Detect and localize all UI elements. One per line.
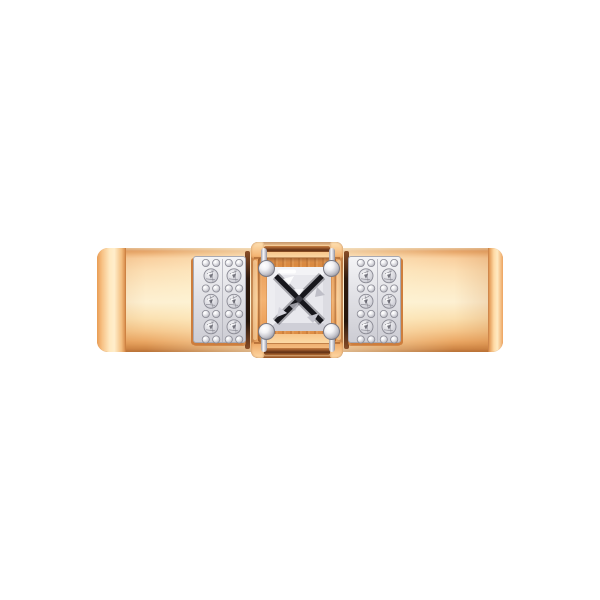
center-princess-diamond bbox=[267, 267, 331, 331]
prong-ball bbox=[323, 323, 340, 340]
prong-ball bbox=[258, 260, 275, 277]
cradle-wall-highlight bbox=[253, 260, 257, 340]
band-left-end-facet bbox=[97, 248, 126, 352]
cradle-recessed-slot-bottom bbox=[264, 348, 330, 355]
pave-diamond-plate-right bbox=[348, 256, 401, 343]
prong-ball bbox=[258, 323, 275, 340]
prong-ball bbox=[323, 260, 340, 277]
pave-diamond-plate-left bbox=[193, 256, 246, 343]
band-right-end-facet bbox=[488, 248, 503, 352]
ring-product-photo bbox=[0, 0, 600, 600]
